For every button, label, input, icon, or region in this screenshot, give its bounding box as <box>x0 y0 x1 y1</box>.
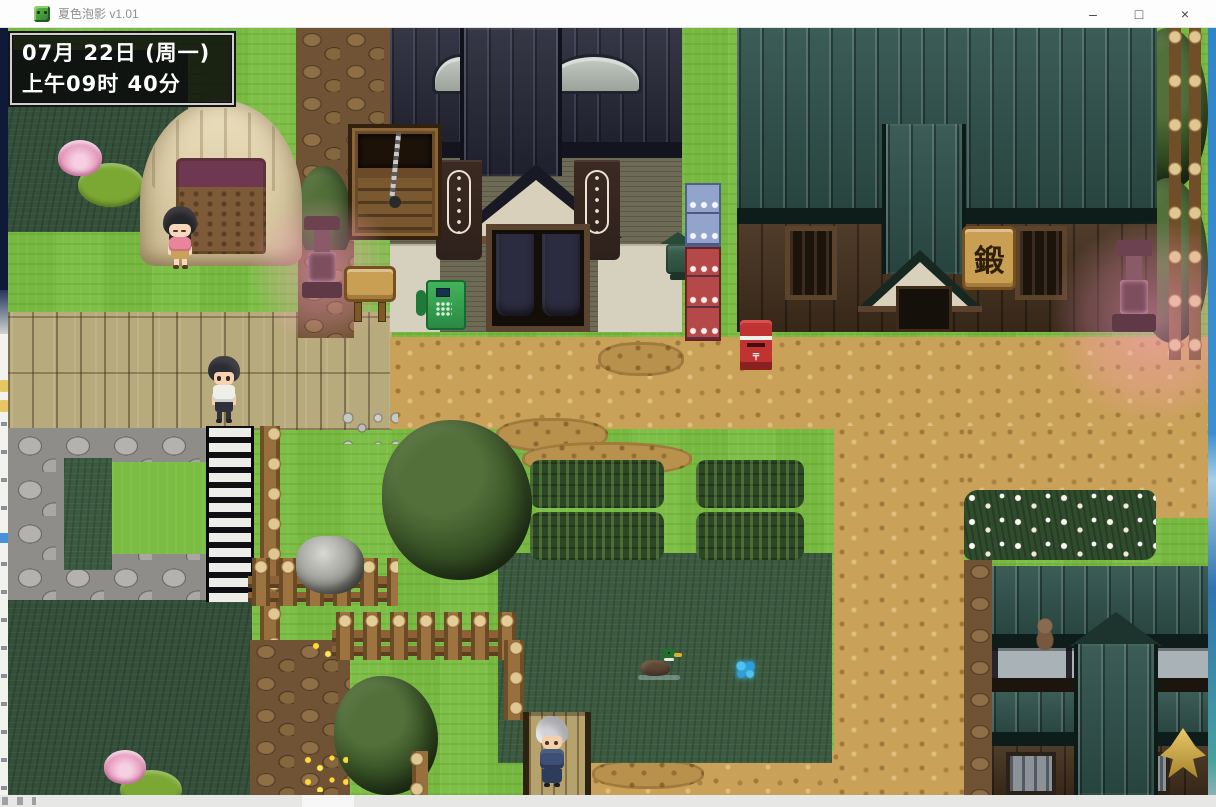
npc-girl[interactable] <box>158 206 202 270</box>
elder-eyes <box>545 741 549 745</box>
duck-body <box>640 660 670 676</box>
blacksmith-window <box>785 226 837 300</box>
stone-lantern-base <box>1112 314 1156 332</box>
girl-shorts <box>171 251 189 259</box>
lantern-base <box>670 274 686 280</box>
inn-window <box>1006 752 1056 795</box>
roof-animal <box>1035 618 1055 650</box>
rock-cliff <box>296 28 398 136</box>
wooden-signpost[interactable] <box>344 266 396 322</box>
desktop-wallpaper-sliver <box>1208 28 1216 807</box>
dark-grass-patch <box>64 458 112 570</box>
girl-shoes <box>173 265 179 269</box>
window-title: 夏色泡影 v1.01 <box>58 0 139 28</box>
grass-patch <box>112 462 212 554</box>
hud-time: 上午09时 40分 <box>22 69 232 100</box>
payphone-keypad <box>436 302 452 316</box>
crop-row <box>530 512 664 560</box>
folder-icon <box>0 380 8 392</box>
duck-bill <box>674 653 682 657</box>
white-flower-hedge <box>964 490 1156 560</box>
file-list-icons <box>1 418 7 790</box>
pebbles <box>340 410 398 444</box>
dirt-cliff-strip <box>964 560 992 795</box>
inn-tower <box>1074 644 1158 795</box>
boy-body <box>213 385 235 402</box>
fence-post <box>406 751 428 795</box>
lotus-flower <box>58 140 102 176</box>
log-fence-vertical <box>498 640 534 720</box>
lotus-flower <box>104 750 146 784</box>
entrance-curtain <box>496 234 534 316</box>
boy-shoes <box>216 419 222 423</box>
entrance-curtain <box>542 234 580 316</box>
soil-patch <box>598 342 684 376</box>
desktop: 夏色泡影 v1.01 – □ × <box>0 0 1216 807</box>
banner-text-oval <box>447 170 471 234</box>
minimize-button[interactable]: – <box>1070 0 1116 28</box>
window-titlebar[interactable]: 夏色泡影 v1.01 – □ × <box>0 0 1216 28</box>
stone-lantern-base <box>302 282 342 298</box>
postbox-band <box>740 336 772 340</box>
boy-eyes <box>217 376 221 381</box>
background-window-dark-area <box>0 28 8 290</box>
file-icon <box>0 533 8 543</box>
crop-row <box>696 512 804 560</box>
payphone-screen <box>436 288 450 297</box>
hud-date: 07月 22日 (周一) <box>22 38 232 69</box>
app-icon <box>34 6 50 22</box>
postbox-slot <box>747 343 765 347</box>
postbox-mark: 〒 <box>740 350 772 363</box>
log-fence-vertical <box>254 426 294 648</box>
shop-roof-tower <box>460 28 562 176</box>
maximize-button[interactable]: □ <box>1116 0 1162 28</box>
inn-tower-cap <box>1070 612 1162 646</box>
bottle-crates-blue[interactable] <box>685 183 721 247</box>
stone-lantern-cap <box>304 216 340 230</box>
well-hook <box>389 196 401 208</box>
signpost-leg <box>378 302 386 322</box>
signpost-leg <box>354 302 362 322</box>
yellow-flowers <box>300 752 348 792</box>
stone-lantern-neck <box>1126 256 1142 280</box>
stone-lantern[interactable] <box>1108 240 1160 348</box>
background-window-fade <box>0 290 8 334</box>
crop-row <box>530 460 664 508</box>
duck-neck-ring <box>664 658 674 661</box>
datetime-hud: 07月 22日 (周一) 上午09时 40分 <box>10 33 234 105</box>
payphone[interactable] <box>416 280 470 332</box>
shop-banner <box>436 160 482 260</box>
postbox[interactable]: 〒 <box>740 320 772 370</box>
girl-eyes <box>173 230 178 232</box>
duck-eye <box>668 652 670 654</box>
elder-feet <box>544 783 550 787</box>
crop-row <box>696 460 804 508</box>
stone-lantern-light <box>1120 280 1148 314</box>
stone-lantern-light <box>308 252 336 282</box>
elder-robe <box>542 769 562 783</box>
blacksmith-sign[interactable]: 鍛 <box>962 226 1016 290</box>
blue-butterfly[interactable] <box>735 660 757 682</box>
background-window-artifact <box>2 797 36 805</box>
soil-patch <box>592 759 704 789</box>
dirt-path-vertical <box>834 426 964 795</box>
signpost-board <box>344 266 396 302</box>
close-button[interactable]: × <box>1162 0 1208 28</box>
bottle-crates-red[interactable] <box>685 247 721 341</box>
window-bottom-border <box>0 795 1216 807</box>
duck[interactable] <box>638 648 684 684</box>
log-fence <box>332 612 516 660</box>
border-highlight <box>302 795 354 807</box>
stone-lantern-neck <box>314 230 330 252</box>
background-window-sliver <box>0 28 8 795</box>
folder-icon <box>0 400 8 412</box>
elder-body <box>540 749 564 769</box>
white-brick-pillar <box>206 426 254 602</box>
blacksmith-door[interactable] <box>896 286 952 332</box>
stone-lantern-cap <box>1116 240 1152 256</box>
girl-body <box>169 237 191 252</box>
boulder <box>296 536 364 594</box>
shop-entrance[interactable] <box>486 224 590 332</box>
boy-pants <box>215 402 233 412</box>
stone-lantern[interactable] <box>300 216 344 316</box>
npc-elder[interactable] <box>529 716 575 792</box>
game-viewport[interactable]: 鍛 <box>8 28 1208 795</box>
npc-boy[interactable] <box>202 354 246 424</box>
payphone-handset <box>416 290 426 316</box>
